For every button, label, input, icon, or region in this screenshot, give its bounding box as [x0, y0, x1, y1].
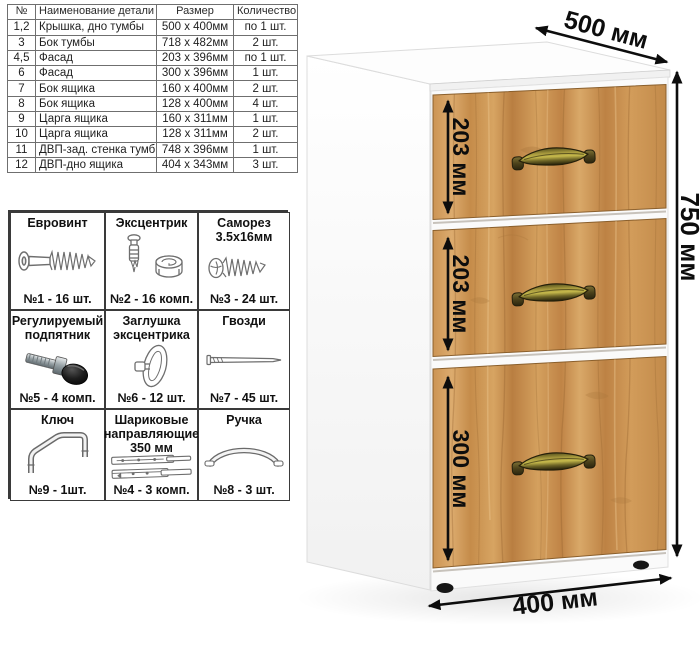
- hardware-title: Заглушкаэксцентрика: [113, 314, 190, 342]
- part-size: 203 х 396мм: [157, 50, 234, 65]
- part-qty: 4 шт.: [234, 96, 298, 111]
- part-size: 300 х 396мм: [157, 66, 234, 81]
- handle-icon: [202, 427, 286, 483]
- table-row: 9 Царга ящика 160 х 311мм 1 шт.: [8, 112, 298, 127]
- hardware-caption: №3 - 24 шт.: [210, 292, 278, 306]
- ball-slides-icon: [109, 455, 195, 483]
- hardware-title: Ручка: [226, 413, 262, 427]
- hardware-caption: №2 - 16 комп.: [110, 292, 193, 306]
- cam-cover-icon: [122, 342, 182, 391]
- part-num: 9: [8, 112, 36, 127]
- part-qty: по 1 шт.: [234, 50, 298, 65]
- hardware-cell-ruchka: Ручка №8 - 3 шт.: [198, 409, 290, 501]
- self-tap-screw-icon: [205, 244, 283, 292]
- part-num: 10: [8, 127, 36, 142]
- part-name: Бок ящика: [36, 96, 157, 111]
- part-num: 3: [8, 35, 36, 50]
- adjustable-foot-icon: [21, 342, 95, 391]
- part-num: 11: [8, 142, 36, 157]
- part-name: Фасад: [36, 66, 157, 81]
- hardware-caption: №6 - 12 шт.: [117, 391, 185, 405]
- cabinet-foot-right: [633, 561, 649, 570]
- hardware-cell-eccentric: Эксцентрик №2 -: [105, 212, 198, 310]
- hardware-cell-gvozdi: Гвозди №7 - 45 шт.: [198, 310, 290, 409]
- part-name: Царга ящика: [36, 127, 157, 142]
- col-header-qty: Количество: [234, 5, 298, 20]
- part-size: 748 х 396мм: [157, 142, 234, 157]
- part-size: 160 х 400мм: [157, 81, 234, 96]
- part-num: 1,2: [8, 20, 36, 35]
- part-size: 404 х 343мм: [157, 157, 234, 172]
- hardware-grid: Евровинт №1 - 16 шт. Эксцентрик: [8, 210, 288, 499]
- table-row: 1,2 Крышка, дно тумбы 500 х 400мм по 1 ш…: [8, 20, 298, 35]
- table-row: 12 ДВП-дно ящика 404 х 343мм 3 шт.: [8, 157, 298, 172]
- part-num: 4,5: [8, 50, 36, 65]
- cabinet-foot-left: [437, 583, 454, 593]
- part-size: 718 х 482мм: [157, 35, 234, 50]
- hardware-title: Саморез3.5х16мм: [216, 216, 273, 244]
- part-name: ДВП-зад. стенка тумбы: [36, 142, 157, 157]
- hex-key-icon: [22, 427, 94, 483]
- part-size: 500 х 400мм: [157, 20, 234, 35]
- part-qty: 2 шт.: [234, 127, 298, 142]
- table-row: 6 Фасад 300 х 396мм 1 шт.: [8, 66, 298, 81]
- part-name: ДВП-дно ящика: [36, 157, 157, 172]
- col-header-num: №: [8, 5, 36, 20]
- hardware-cell-zaglushka: Заглушкаэксцентрика №6 - 12 шт.: [105, 310, 198, 409]
- part-size: 128 х 311мм: [157, 127, 234, 142]
- col-header-name: Наименование детали: [36, 5, 157, 20]
- col-header-size: Размер: [157, 5, 234, 20]
- hardware-caption: №5 - 4 комп.: [19, 391, 95, 405]
- dim-label-height: 750 мм: [675, 192, 700, 281]
- part-name: Фасад: [36, 50, 157, 65]
- table-row: 3 Бок тумбы 718 х 482мм 2 шт.: [8, 35, 298, 50]
- hardware-title: Евровинт: [27, 216, 87, 230]
- hardware-caption: №9 - 1шт.: [29, 483, 87, 497]
- assembly-instruction-sheet: № Наименование детали Размер Количество …: [0, 0, 700, 648]
- part-qty: 2 шт.: [234, 81, 298, 96]
- dim-label-drawer1: 203 мм: [448, 118, 474, 197]
- hardware-cell-eurovint: Евровинт №1 - 16 шт.: [10, 212, 105, 310]
- hardware-title: Гвозди: [222, 314, 266, 328]
- part-size: 160 х 311мм: [157, 112, 234, 127]
- parts-table-header: № Наименование детали Размер Количество: [8, 5, 298, 20]
- table-row: 8 Бок ящика 128 х 400мм 4 шт.: [8, 96, 298, 111]
- part-qty: 1 шт.: [234, 66, 298, 81]
- cabinet-side-panel: [307, 56, 430, 590]
- part-size: 128 х 400мм: [157, 96, 234, 111]
- cabinet-figure: 203 мм 203 мм 300 мм 750 мм 500 мм 400 м…: [290, 0, 700, 648]
- hardware-caption: №7 - 45 шт.: [210, 391, 278, 405]
- hardware-caption: №4 - 3 комп.: [113, 483, 189, 497]
- part-num: 8: [8, 96, 36, 111]
- part-qty: 1 шт.: [234, 142, 298, 157]
- table-row: 10 Царга ящика 128 х 311мм 2 шт.: [8, 127, 298, 142]
- nail-icon: [203, 328, 285, 391]
- hardware-cell-samorez: Саморез3.5х16мм №3 - 24 шт.: [198, 212, 290, 310]
- hardware-cell-napravlyayushchie: Шариковыенаправляющие350 мм: [105, 409, 198, 501]
- part-num: 7: [8, 81, 36, 96]
- part-qty: 1 шт.: [234, 112, 298, 127]
- part-name: Бок тумбы: [36, 35, 157, 50]
- part-num: 12: [8, 157, 36, 172]
- part-name: Царга ящика: [36, 112, 157, 127]
- part-num: 6: [8, 66, 36, 81]
- table-row: 4,5 Фасад 203 х 396мм по 1 шт.: [8, 50, 298, 65]
- part-qty: по 1 шт.: [234, 20, 298, 35]
- part-qty: 3 шт.: [234, 157, 298, 172]
- hardware-title: Шариковыенаправляющие350 мм: [104, 413, 199, 455]
- hardware-cell-podpyatnik: Регулируемыйподпятник: [10, 310, 105, 409]
- part-name: Бок ящика: [36, 81, 157, 96]
- hardware-caption: №8 - 3 шт.: [213, 483, 274, 497]
- hardware-title: Ключ: [41, 413, 74, 427]
- hardware-title: Эксцентрик: [116, 216, 188, 230]
- table-row: 7 Бок ящика 160 х 400мм 2 шт.: [8, 81, 298, 96]
- dim-label-drawer3: 300 мм: [448, 430, 474, 509]
- eccentric-cam-icon: [110, 230, 194, 292]
- part-name: Крышка, дно тумбы: [36, 20, 157, 35]
- hardware-caption: №1 - 16 шт.: [23, 292, 91, 306]
- table-row: 11 ДВП-зад. стенка тумбы 748 х 396мм 1 ш…: [8, 142, 298, 157]
- dim-label-drawer2: 203 мм: [448, 255, 474, 334]
- hardware-cell-klyuch: Ключ №9 - 1шт.: [10, 409, 105, 501]
- hardware-title: Регулируемыйподпятник: [12, 314, 103, 342]
- euro-screw-icon: [16, 230, 100, 292]
- parts-table: № Наименование детали Размер Количество …: [7, 4, 298, 173]
- part-qty: 2 шт.: [234, 35, 298, 50]
